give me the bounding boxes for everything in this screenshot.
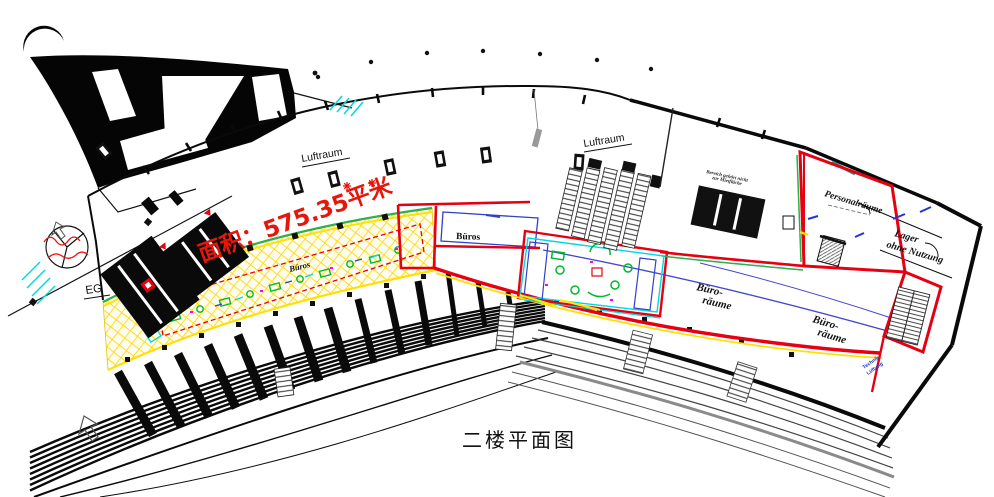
- stair-flights: [554, 149, 664, 256]
- service-stair: [886, 287, 930, 345]
- luftraum-left-label: Luftraum: [300, 146, 343, 165]
- grid-dots: [316, 49, 653, 79]
- eg-label: EG: [85, 283, 103, 297]
- wing-roof: [23, 26, 352, 216]
- cyan-hatch-left: [22, 262, 55, 304]
- bueroraeume-a-label-2: räume: [701, 294, 732, 312]
- luftraum-center-label: Luftraum: [583, 132, 626, 150]
- drawing-title: 二楼平面图: [462, 428, 577, 452]
- floor-plan-canvas: 面积：575.35平米 Luftraum Luftraum EG Büros B…: [0, 0, 994, 497]
- shaft-block: [691, 185, 766, 238]
- personalraeume-label: Personalräume: [823, 189, 884, 216]
- bueroraeume-b-label-2: räume: [816, 326, 848, 346]
- bueros-room-label: Büros: [456, 232, 481, 243]
- floor-plan-svg: 面积：575.35平米 Luftraum Luftraum EG Büros B…: [0, 0, 994, 497]
